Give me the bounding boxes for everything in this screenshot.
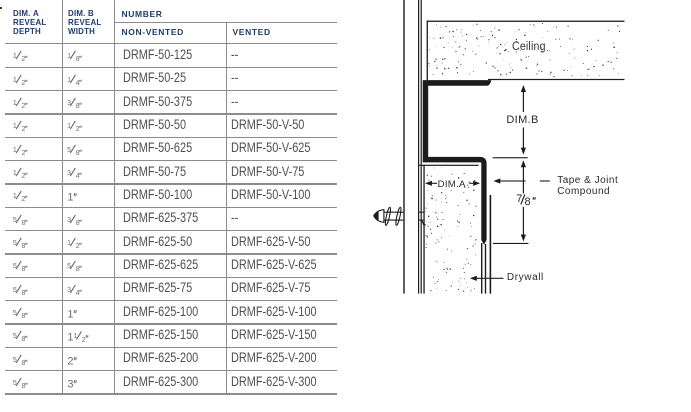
svg-text:8: 8: [525, 196, 531, 208]
